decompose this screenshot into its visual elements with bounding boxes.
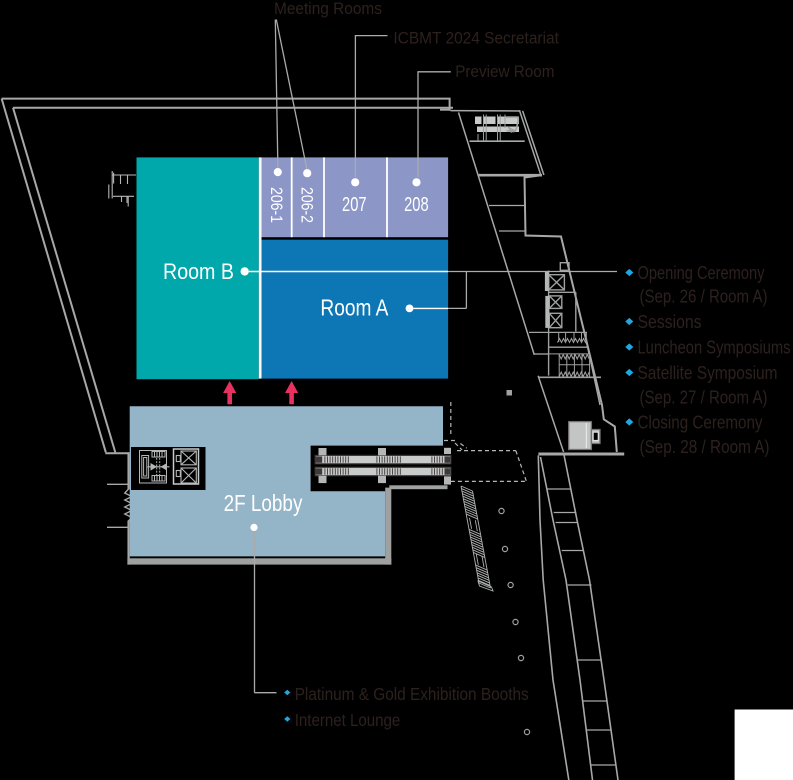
svg-text:Room B: Room B xyxy=(163,259,234,284)
svg-text:Opening Ceremony: Opening Ceremony xyxy=(638,263,765,283)
svg-text:206-2: 206-2 xyxy=(297,187,315,223)
svg-text:207: 207 xyxy=(342,193,367,216)
svg-text:Preview Room: Preview Room xyxy=(455,62,554,81)
svg-text:Internet Lounge: Internet Lounge xyxy=(295,710,401,730)
svg-text:208: 208 xyxy=(404,193,429,216)
svg-text:Closing Ceremony: Closing Ceremony xyxy=(638,413,763,433)
svg-text:(Sep. 28 / Room A): (Sep. 28 / Room A) xyxy=(640,437,770,457)
svg-text:Meeting Rooms: Meeting Rooms xyxy=(274,0,382,18)
svg-text:(Sep. 27 / Room A): (Sep. 27 / Room A) xyxy=(640,388,768,408)
svg-text:Sessions: Sessions xyxy=(638,312,702,332)
svg-text:Room A: Room A xyxy=(320,295,389,321)
svg-text:206-1: 206-1 xyxy=(267,187,285,223)
svg-text:(Sep. 26 / Room A): (Sep. 26 / Room A) xyxy=(640,287,768,307)
svg-text:Satellite Symposium: Satellite Symposium xyxy=(638,363,778,383)
svg-text:2F Lobby: 2F Lobby xyxy=(224,490,303,516)
svg-text:Luncheon Symposiums: Luncheon Symposiums xyxy=(638,338,791,358)
svg-text:Platinum & Gold Exhibition Boo: Platinum & Gold Exhibition Booths xyxy=(295,684,529,704)
svg-text:ICBMT 2024 Secretariat: ICBMT 2024 Secretariat xyxy=(393,28,559,47)
